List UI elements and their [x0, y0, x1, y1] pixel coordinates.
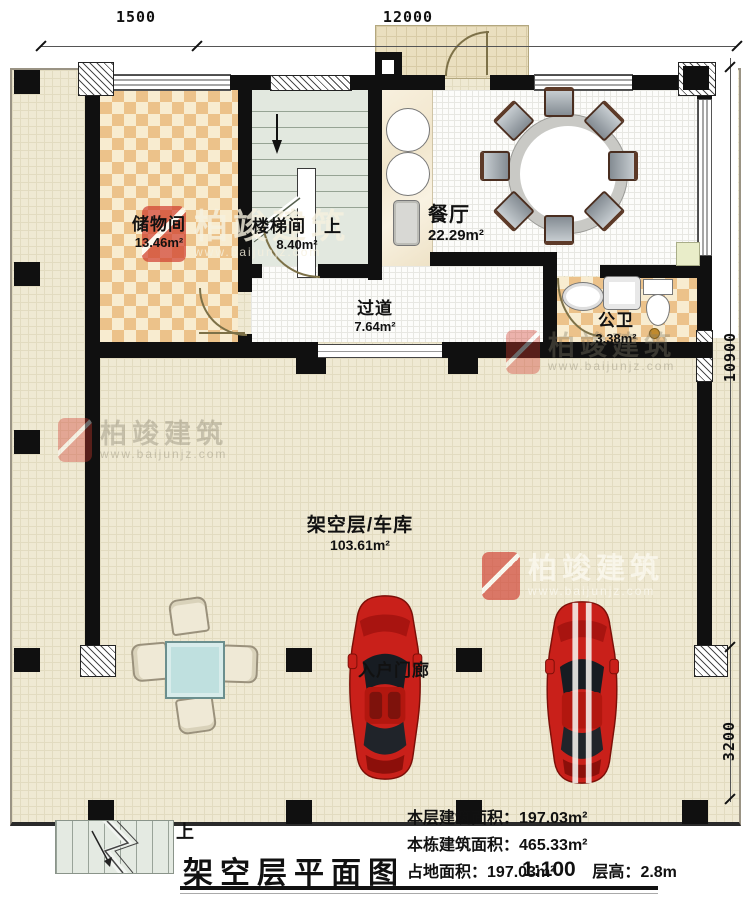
- stat-value: 2.8m: [640, 864, 676, 881]
- column: [682, 800, 708, 824]
- basin-circle: [386, 152, 430, 196]
- dining-chair: [544, 87, 574, 117]
- control-panel: [393, 200, 420, 246]
- stat-label: 占地面积：: [407, 864, 487, 881]
- patio-chair: [168, 596, 211, 637]
- wall-top-2: [230, 75, 270, 90]
- wall-bath-west: [543, 265, 557, 342]
- dim-line-top: [40, 46, 737, 47]
- title-underline: [180, 886, 658, 890]
- cap-top-right-column: [683, 66, 709, 90]
- label-bath: 公卫 3.38m²: [585, 306, 647, 346]
- dim-line-right: [730, 58, 731, 802]
- column: [14, 648, 40, 672]
- wall-stair-south-1: [238, 264, 262, 278]
- room-area: 7.64m²: [330, 319, 420, 334]
- room-name: 储物间: [132, 210, 186, 235]
- stat-value: 465.33m²: [519, 837, 588, 854]
- car-top-view-red-striped: [532, 598, 632, 786]
- dim-value-12000: 12000: [377, 8, 439, 26]
- label-entry-porch: 入户门廊: [358, 656, 430, 681]
- stat-label: 本栋建筑面积：: [407, 837, 519, 854]
- floor-drain: [649, 328, 660, 339]
- room-area: 13.46m²: [132, 235, 186, 250]
- room-area: 8.40m²: [252, 237, 342, 252]
- dining-chair: [544, 215, 574, 245]
- steps-break-line: [56, 821, 173, 873]
- column: [14, 430, 40, 454]
- room-name: 楼梯间: [252, 217, 306, 236]
- room-name: 公卫: [585, 306, 647, 331]
- label-dining: 餐厅 22.29m²: [428, 198, 484, 244]
- room-name: 餐厅: [428, 198, 484, 227]
- wall-dining-south: [430, 252, 557, 266]
- room-area: 3.38m²: [585, 331, 647, 346]
- wall-top-3: [350, 75, 445, 90]
- dim-value-1500: 1500: [106, 8, 166, 26]
- column: [14, 262, 40, 286]
- room-name: 过道: [330, 294, 420, 319]
- stat-footprint-and-height: 占地面积：197.03m² 层高：2.8m: [407, 858, 677, 882]
- patio-table: [165, 641, 225, 699]
- column: [456, 648, 482, 672]
- stat-value: 197.03m²: [487, 864, 556, 881]
- wall-stair-east: [368, 90, 382, 280]
- dim-value-10900: 10900: [721, 327, 739, 387]
- stat-label: 层高：: [592, 864, 640, 881]
- stat-floor-area: 本层建筑面积：197.03m²: [407, 804, 588, 828]
- stat-building-area: 本栋建筑面积：465.33m²: [407, 831, 588, 855]
- patio-chair: [175, 695, 218, 736]
- column: [286, 648, 312, 672]
- dining-window-east: [698, 100, 711, 255]
- label-garage: 架空层/车库 103.61m²: [270, 510, 450, 553]
- wall-divider-west: [92, 342, 318, 358]
- cap-top-left: [78, 62, 114, 96]
- entry-opening-sill: [318, 344, 442, 358]
- dining-chair: [480, 151, 510, 181]
- ac-unit: [676, 242, 700, 266]
- wall-top-4: [490, 75, 535, 90]
- dim-value-3200: 3200: [720, 716, 738, 766]
- room-area: 103.61m²: [270, 537, 450, 553]
- divider-column-east: [448, 358, 478, 374]
- storage-door-leaf: [199, 332, 245, 334]
- patio-chair: [221, 644, 258, 683]
- landing-column-notch: [382, 60, 394, 74]
- car-top-view-red: [335, 592, 435, 782]
- floor-plan-canvas: 柏竣建筑 www.baijunjz.com 柏竣建筑 www.baijunjz.…: [0, 0, 750, 897]
- room-area: 22.29m²: [428, 227, 484, 244]
- label-stairwell: 楼梯间 上 8.40m²: [252, 212, 342, 252]
- toilet-tank: [643, 279, 673, 295]
- column: [14, 70, 40, 94]
- column: [286, 800, 312, 824]
- stat-label: 本层建筑面积：: [407, 810, 519, 827]
- cap-left-end: [80, 645, 116, 677]
- divider-column-west: [296, 358, 326, 374]
- wall-divider-east: [442, 342, 712, 358]
- title-underline-thin: [180, 893, 658, 894]
- steps-up-label: 上: [176, 818, 195, 844]
- basin-circle: [386, 108, 430, 152]
- room-name: 架空层/车库: [270, 510, 450, 537]
- patio-chair: [130, 642, 169, 683]
- landing-door-leaf: [486, 31, 488, 75]
- wall-left: [85, 75, 100, 648]
- wall-storage-east: [238, 90, 252, 292]
- cap-right-end: [694, 645, 728, 677]
- wall-top-hatched: [270, 75, 352, 91]
- label-storage: 储物间 13.46m²: [132, 210, 186, 250]
- storage-window: [110, 75, 230, 90]
- up-direction: 上: [324, 217, 342, 236]
- label-hallway: 过道 7.64m²: [330, 294, 420, 334]
- mask-right: [712, 58, 738, 338]
- dining-chair: [608, 151, 638, 181]
- stat-value: 197.03m²: [519, 810, 588, 827]
- wall-stair-south-2: [318, 264, 382, 278]
- bath-washer: [603, 276, 641, 310]
- exterior-steps: [55, 820, 174, 874]
